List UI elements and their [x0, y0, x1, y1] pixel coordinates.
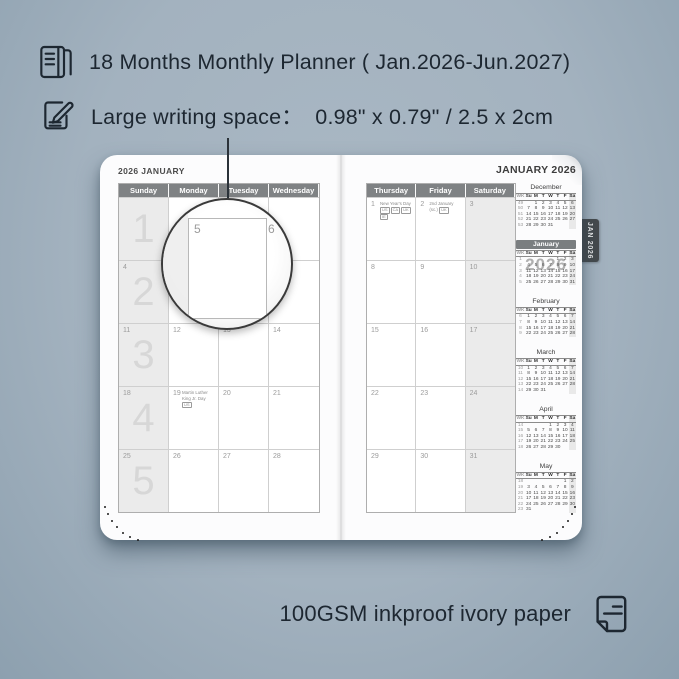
day-cell: 1New Year's Day USCAUKIE	[367, 197, 416, 260]
stitch-dot	[567, 520, 569, 522]
day-number: 9	[420, 264, 424, 271]
day-cell: 3	[466, 197, 515, 260]
mini-day-cell	[554, 388, 561, 394]
day-number: 17	[470, 327, 478, 334]
day-number: 31	[470, 453, 478, 460]
day-cell: 31	[466, 449, 515, 512]
mini-day-cell: 28	[569, 331, 576, 337]
stitch-dot	[107, 513, 109, 515]
mini-weekday-header: T	[540, 307, 547, 315]
day-number: 8	[371, 264, 375, 271]
day-cell: 22	[367, 386, 416, 449]
day-number: 21	[273, 390, 281, 397]
day-number: 18	[123, 390, 131, 397]
mini-day-cell: 29	[525, 388, 532, 394]
mini-weekday-header: WK	[516, 472, 525, 480]
mini-weekday-header: Sa	[569, 193, 576, 201]
day-number: 10	[470, 264, 478, 271]
mini-week-number: 5	[516, 280, 525, 286]
day-cell: 23	[416, 386, 465, 449]
mini-month-grid: WKSuMTWTFSa14123415567891011161213141516…	[516, 415, 576, 451]
mini-month: FebruaryWKSuMTWTFSa612345677891011121314…	[516, 297, 576, 337]
mini-weekday-header: W	[547, 307, 554, 315]
day-cell: 24	[466, 386, 515, 449]
mini-month-name: February	[516, 297, 576, 306]
mini-weekday-header: T	[540, 358, 547, 366]
mini-day-cell: 30	[561, 280, 568, 286]
holiday-country-badge: IE	[380, 214, 388, 221]
day-number: 1	[371, 201, 375, 208]
magnifier-lens: 5 6	[161, 198, 293, 330]
mini-weekday-header: T	[554, 472, 561, 480]
mini-weekday-header: W	[547, 358, 554, 366]
day-cell: 28	[269, 449, 319, 512]
mini-weekday-header: Sa	[569, 358, 576, 366]
mini-day-cell	[547, 507, 554, 513]
mini-month-name: January	[516, 240, 576, 249]
mini-weekday-header: Sa	[569, 472, 576, 480]
mini-weekday-header: WK	[516, 193, 525, 201]
month-index-tab: JAN 2026	[580, 219, 599, 262]
stitch-dot	[541, 539, 543, 541]
day-cell: 12	[169, 323, 219, 386]
day-number: 19	[173, 390, 181, 397]
mini-weekday-header: T	[554, 415, 561, 423]
mini-day-cell: 26	[532, 280, 539, 286]
holiday-country-badge: UK	[439, 207, 449, 214]
day-cell: 13	[219, 323, 269, 386]
mini-weekday-header: F	[561, 358, 568, 366]
mini-day-cell: 28	[547, 280, 554, 286]
mini-month: DecemberWKSuMTWTFSa491234565078910111213…	[516, 183, 576, 229]
day-cell: 10	[466, 260, 515, 323]
holiday-country-badge: US	[380, 207, 390, 214]
mini-day-cell: 30	[554, 445, 561, 451]
mini-weekday-header: Su	[525, 415, 532, 423]
stitch-dot	[116, 526, 118, 528]
holiday-label: 2nd January (sc.) UK	[429, 201, 462, 214]
mini-day-cell: 28	[525, 223, 532, 229]
mini-day-cell: 31	[547, 223, 554, 229]
mini-month-grid: WKSuMTWTFSa10123456711891011121314121516…	[516, 358, 576, 394]
mini-day-cell: 27	[532, 445, 539, 451]
mini-day-cell: 22	[525, 331, 532, 337]
page-spine	[336, 155, 346, 540]
holiday-country-badge: CA	[391, 207, 401, 214]
day-number: 30	[420, 453, 428, 460]
mini-day-cell: 27	[561, 331, 568, 337]
pencil-note-icon	[38, 95, 78, 135]
stitch-dot	[122, 532, 124, 534]
day-cell: 26	[169, 449, 219, 512]
lens-next-day-number: 6	[268, 222, 275, 236]
feature-text-paper: 100GSM inkproof ivory paper	[279, 601, 571, 627]
year-watermark: 2026	[516, 255, 576, 275]
mini-week-number: 18	[516, 445, 525, 451]
holiday-label: Martin Luther King Jr. Day US	[182, 390, 216, 408]
mini-weekday-header: Sa	[569, 307, 576, 315]
right-page-title: JANUARY 2026	[496, 164, 576, 176]
day-cell: 27	[219, 449, 269, 512]
mini-weekday-header: F	[561, 193, 568, 201]
feature-row-duration: 18 Months Monthly Planner ( Jan.2026-Jun…	[36, 40, 570, 84]
mini-day-cell: 27	[540, 280, 547, 286]
mini-weekday-header: WK	[516, 358, 525, 366]
mini-weekday-header: T	[554, 193, 561, 201]
day-cell: 21	[269, 386, 319, 449]
day-number: 4	[123, 264, 127, 271]
mini-weekday-header: T	[540, 193, 547, 201]
mini-month: MarchWKSuMTWTFSa101234567118910111213141…	[516, 348, 576, 394]
mini-month-name: March	[516, 348, 576, 357]
lens-day-number: 5	[194, 222, 201, 236]
mini-day-cell	[561, 223, 568, 229]
holiday-name: Martin Luther King Jr. Day	[182, 390, 208, 401]
mini-weekday-header: M	[532, 193, 539, 201]
stitch-dot	[111, 520, 113, 522]
mini-weekday-header: F	[561, 307, 568, 315]
mini-day-cell	[569, 223, 576, 229]
mini-weekday-header: M	[532, 358, 539, 366]
mini-day-cell: 28	[540, 445, 547, 451]
stitch-dot	[556, 532, 558, 534]
mini-day-cell: 26	[554, 331, 561, 337]
day-cell: 418	[119, 386, 169, 449]
mini-weekday-header: M	[532, 415, 539, 423]
mini-day-cell	[561, 507, 568, 513]
mini-day-cell: 29	[554, 280, 561, 286]
day-cell: 15	[367, 323, 416, 386]
day-cell: 311	[119, 323, 169, 386]
mini-week-number: 53	[516, 223, 525, 229]
day-cell: 14	[269, 323, 319, 386]
day-cell: 16	[416, 323, 465, 386]
mini-month: MayWKSuMTWTFSa18121934567892010111213141…	[516, 462, 576, 513]
day-number: 28	[273, 453, 281, 460]
mini-month-name: May	[516, 462, 576, 471]
feature-text-writing-space: Large writing space： 0.98" x 0.79" / 2.5…	[91, 100, 553, 131]
day-cell: 9	[416, 260, 465, 323]
mini-weekday-header: T	[540, 415, 547, 423]
mini-weekday-header: W	[547, 415, 554, 423]
mini-month: AprilWKSuMTWTFSa141234155678910111612131…	[516, 405, 576, 451]
day-cell: 525	[119, 449, 169, 512]
mini-day-cell	[561, 388, 568, 394]
mini-weekday-header: WK	[516, 415, 525, 423]
mini-day-cell: 31	[540, 388, 547, 394]
mini-weekday-header: F	[561, 472, 568, 480]
mini-weekday-header: T	[554, 307, 561, 315]
mini-calendar-column: DecemberWKSuMTWTFSa491234565078910111213…	[516, 183, 576, 513]
mini-month-name: December	[516, 183, 576, 192]
day-cell: 8	[367, 260, 416, 323]
mini-day-cell	[561, 445, 568, 451]
mini-weekday-header: T	[540, 472, 547, 480]
mini-day-cell	[540, 507, 547, 513]
lens-shaded-column	[163, 200, 188, 328]
mini-weekday-header: M	[532, 472, 539, 480]
day-header: Saturday	[466, 184, 515, 197]
holiday-label: New Year's Day USCAUKIE	[380, 201, 413, 220]
stitch-dot	[571, 513, 573, 515]
stitch-dot	[137, 539, 139, 541]
mini-day-cell: 30	[540, 223, 547, 229]
day-header: Monday	[169, 184, 219, 197]
mini-weekday-header: T	[554, 358, 561, 366]
lens-connector-line	[227, 138, 229, 200]
stitch-dot	[562, 526, 564, 528]
mini-month-grid: WKSuMTWTFSa61234567789101112131481516171…	[516, 307, 576, 337]
mini-week-number: 23	[516, 507, 525, 513]
day-header: Friday	[416, 184, 465, 197]
planner-book-icon	[36, 42, 76, 82]
feature-row-paper: 100GSM inkproof ivory paper	[0, 590, 635, 638]
mini-weekday-header: Su	[525, 358, 532, 366]
stitch-dot	[549, 536, 551, 538]
mini-weekday-header: W	[547, 472, 554, 480]
day-cell: 19Martin Luther King Jr. Day US	[169, 386, 219, 449]
mini-week-number: 9	[516, 331, 525, 337]
day-number: 20	[223, 390, 231, 397]
mini-day-cell: 29	[532, 223, 539, 229]
day-cell: 20	[219, 386, 269, 449]
feature-row-writing-space: Large writing space： 0.98" x 0.79" / 2.5…	[38, 93, 553, 137]
mini-month-name: April	[516, 405, 576, 414]
mini-day-cell: 30	[532, 388, 539, 394]
stitch-dot	[104, 506, 106, 508]
mini-day-cell	[554, 507, 561, 513]
day-number: 14	[273, 327, 281, 334]
holiday-country-badge: UK	[401, 207, 411, 214]
mini-day-cell	[554, 223, 561, 229]
mini-weekday-header: WK	[516, 307, 525, 315]
day-cell: 29	[367, 449, 416, 512]
mini-weekday-header: Su	[525, 307, 532, 315]
day-header: Thursday	[367, 184, 416, 197]
day-number: 3	[470, 201, 474, 208]
day-cell: 17	[466, 323, 515, 386]
holiday-name: New Year's Day	[380, 201, 411, 206]
day-number: 24	[470, 390, 478, 397]
mini-day-cell: 25	[547, 331, 554, 337]
mini-day-cell: 31	[525, 507, 532, 513]
feature-text-duration: 18 Months Monthly Planner ( Jan.2026-Jun…	[89, 50, 570, 75]
day-number: 15	[371, 327, 379, 334]
day-cell: 30	[416, 449, 465, 512]
product-image-canvas: { "colors": { "background": "#a3b2bf", "…	[0, 0, 679, 679]
day-header: Wednesday	[269, 184, 319, 197]
mini-month-grid: WKSuMTWTFSa49123456507891011121351141516…	[516, 193, 576, 229]
mini-day-cell: 29	[547, 445, 554, 451]
mini-weekday-header: Sa	[569, 415, 576, 423]
mini-week-number: 14	[516, 388, 525, 394]
mini-weekday-header: F	[561, 415, 568, 423]
day-number: 26	[173, 453, 181, 460]
mini-day-cell	[569, 445, 576, 451]
stitch-dot	[129, 536, 131, 538]
mini-day-cell: 25	[525, 280, 532, 286]
mini-day-cell	[532, 507, 539, 513]
mini-day-cell: 26	[525, 445, 532, 451]
mini-month-grid: WKSuMTWTFSa18121934567892010111213141516…	[516, 472, 576, 513]
week-number-big: 1	[119, 198, 168, 260]
day-number: 23	[420, 390, 428, 397]
left-page-title: 2026 JANUARY	[118, 166, 185, 176]
mini-weekday-header: M	[532, 307, 539, 315]
day-number: 11	[123, 327, 130, 334]
mini-day-cell: 31	[569, 280, 576, 286]
day-number: 22	[371, 390, 379, 397]
day-number: 16	[420, 327, 428, 334]
mini-day-cell: 23	[532, 331, 539, 337]
right-month-grid: ThursdayFridaySaturday1New Year's Day US…	[366, 183, 516, 513]
mini-day-cell: 24	[540, 331, 547, 337]
day-number: 12	[173, 327, 181, 334]
paper-sheet-icon	[587, 590, 635, 638]
mini-day-cell	[547, 388, 554, 394]
mini-weekday-header: W	[547, 193, 554, 201]
day-number: 29	[371, 453, 379, 460]
day-cell: 22nd January (sc.) UK	[416, 197, 465, 260]
day-header: Sunday	[119, 184, 169, 197]
day-number: 27	[223, 453, 231, 460]
mini-weekday-header: Su	[525, 472, 532, 480]
day-number: 2	[420, 201, 424, 208]
mini-weekday-header: Su	[525, 193, 532, 201]
day-number: 25	[123, 453, 131, 460]
mini-day-cell	[569, 388, 576, 394]
holiday-country-badge: US	[182, 402, 192, 409]
